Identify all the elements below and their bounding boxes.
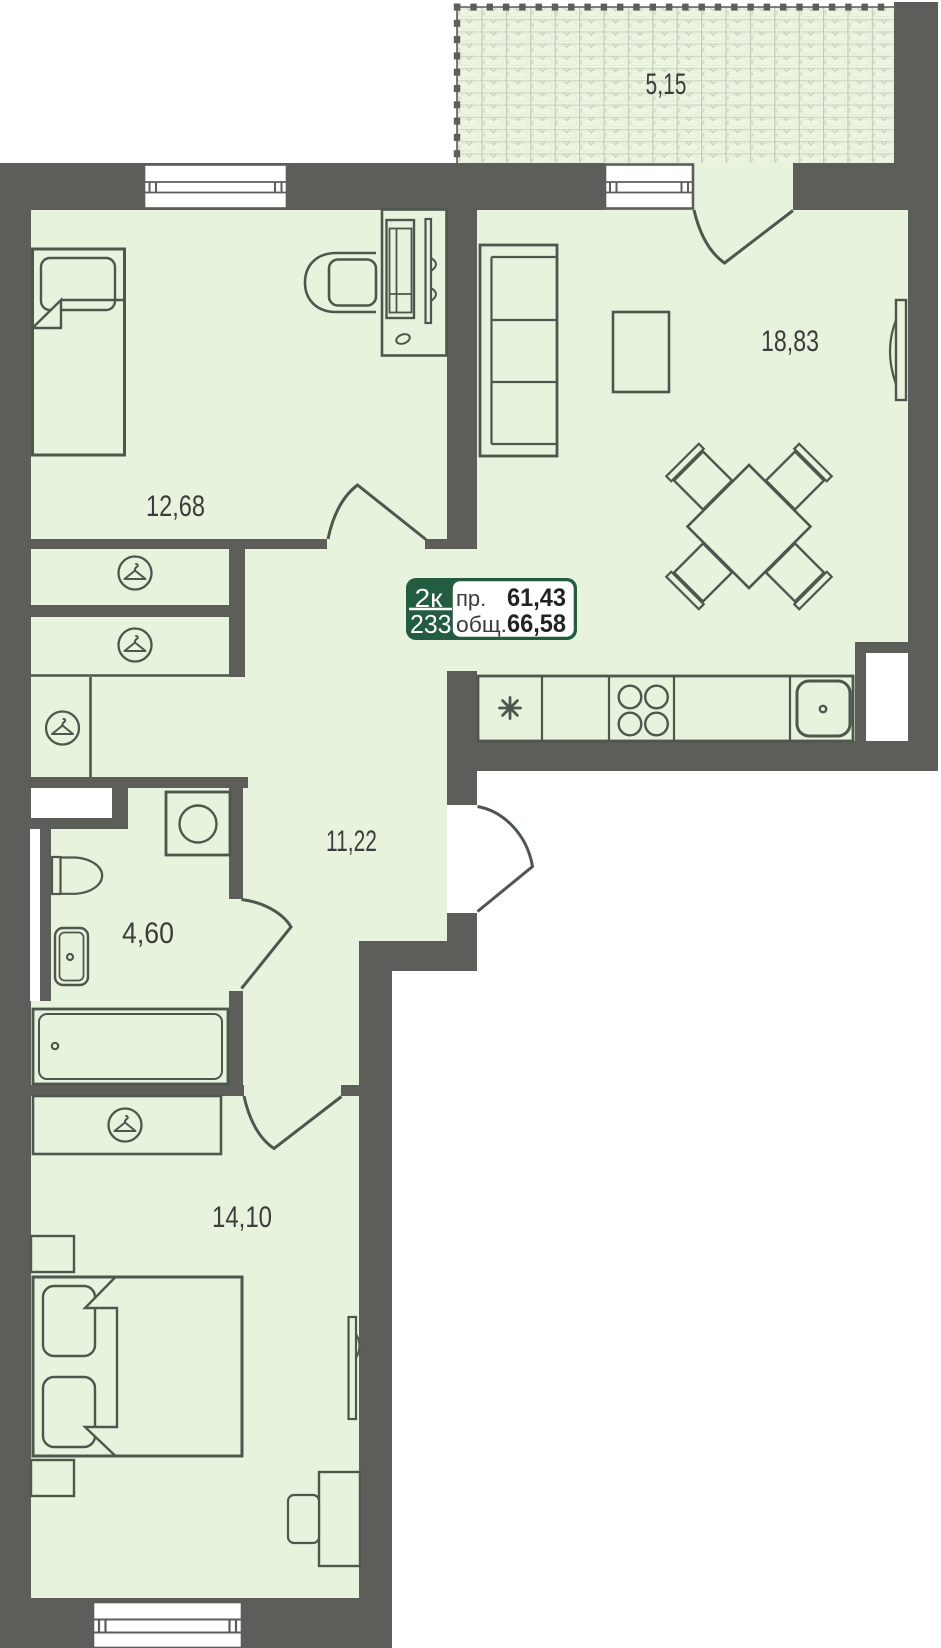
- svg-text:11,22: 11,22: [326, 825, 377, 858]
- svg-text:18,83: 18,83: [761, 325, 819, 358]
- svg-text:4,60: 4,60: [122, 917, 174, 950]
- svg-text:14,10: 14,10: [212, 1201, 272, 1234]
- svg-text:5,15: 5,15: [646, 68, 687, 101]
- svg-text:66,58: 66,58: [507, 610, 566, 638]
- svg-text:пр.: пр.: [456, 586, 486, 611]
- svg-text:61,43: 61,43: [507, 584, 566, 612]
- svg-text:12,68: 12,68: [146, 490, 205, 523]
- svg-text:233: 233: [410, 609, 452, 639]
- svg-text:общ.: общ.: [456, 612, 507, 637]
